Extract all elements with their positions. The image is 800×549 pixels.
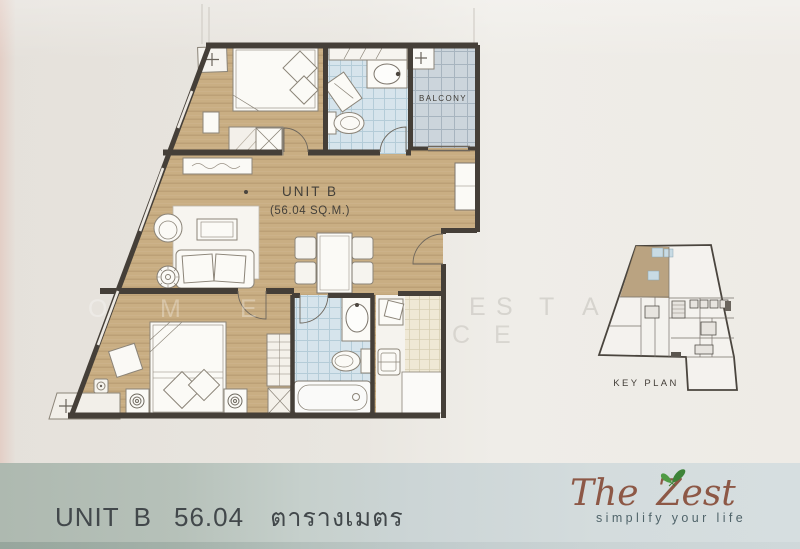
chair xyxy=(352,262,373,284)
brochure-page: UNIT B (56.04 SQ.M.) BALCONY OME ESTA CE xyxy=(0,0,800,549)
key-plan-label: KEY PLAN xyxy=(613,378,679,389)
dining-table xyxy=(317,233,352,293)
fridge xyxy=(455,163,477,210)
stool xyxy=(384,300,403,319)
chair xyxy=(295,237,316,259)
sink-icon xyxy=(346,304,368,332)
footer-unit-info: UNITB56.04ตารางเมตร xyxy=(55,498,404,538)
extension-lines xyxy=(202,4,474,44)
brand-logo: TheZest simplify your life xyxy=(570,474,780,544)
nightstand xyxy=(224,389,247,414)
toilet-tank xyxy=(361,349,371,373)
chair xyxy=(352,237,373,259)
balcony-label: BALCONY xyxy=(419,94,467,103)
unit-area-label: (56.04 SQ.M.) xyxy=(270,205,350,217)
chair xyxy=(295,262,316,284)
nightstand xyxy=(203,112,219,133)
floor-fan xyxy=(157,266,179,288)
footer-unit-letter: B xyxy=(134,502,152,532)
counter xyxy=(402,372,442,413)
nightstand xyxy=(126,389,149,414)
footer-area-value: 56.04 xyxy=(174,502,244,532)
toilet-icon xyxy=(332,351,360,371)
tv-console xyxy=(183,158,252,174)
footer-unit-label: UNIT xyxy=(55,502,120,532)
svg-text:ESTA: ESTA xyxy=(469,293,599,321)
armchair xyxy=(154,214,182,242)
svg-text:CE: CE xyxy=(452,321,511,349)
brand-the: The xyxy=(570,473,639,514)
unit-label: UNIT B xyxy=(282,184,338,199)
butterfly-icon xyxy=(660,467,686,487)
brand-wordmark: TheZest xyxy=(570,474,780,514)
dining-area xyxy=(295,233,373,293)
label-dot xyxy=(244,190,248,194)
shelf xyxy=(329,47,407,60)
footer-area-unit: ตารางเมตร xyxy=(270,503,404,532)
key-plan: KEY PLAN xyxy=(599,245,737,390)
